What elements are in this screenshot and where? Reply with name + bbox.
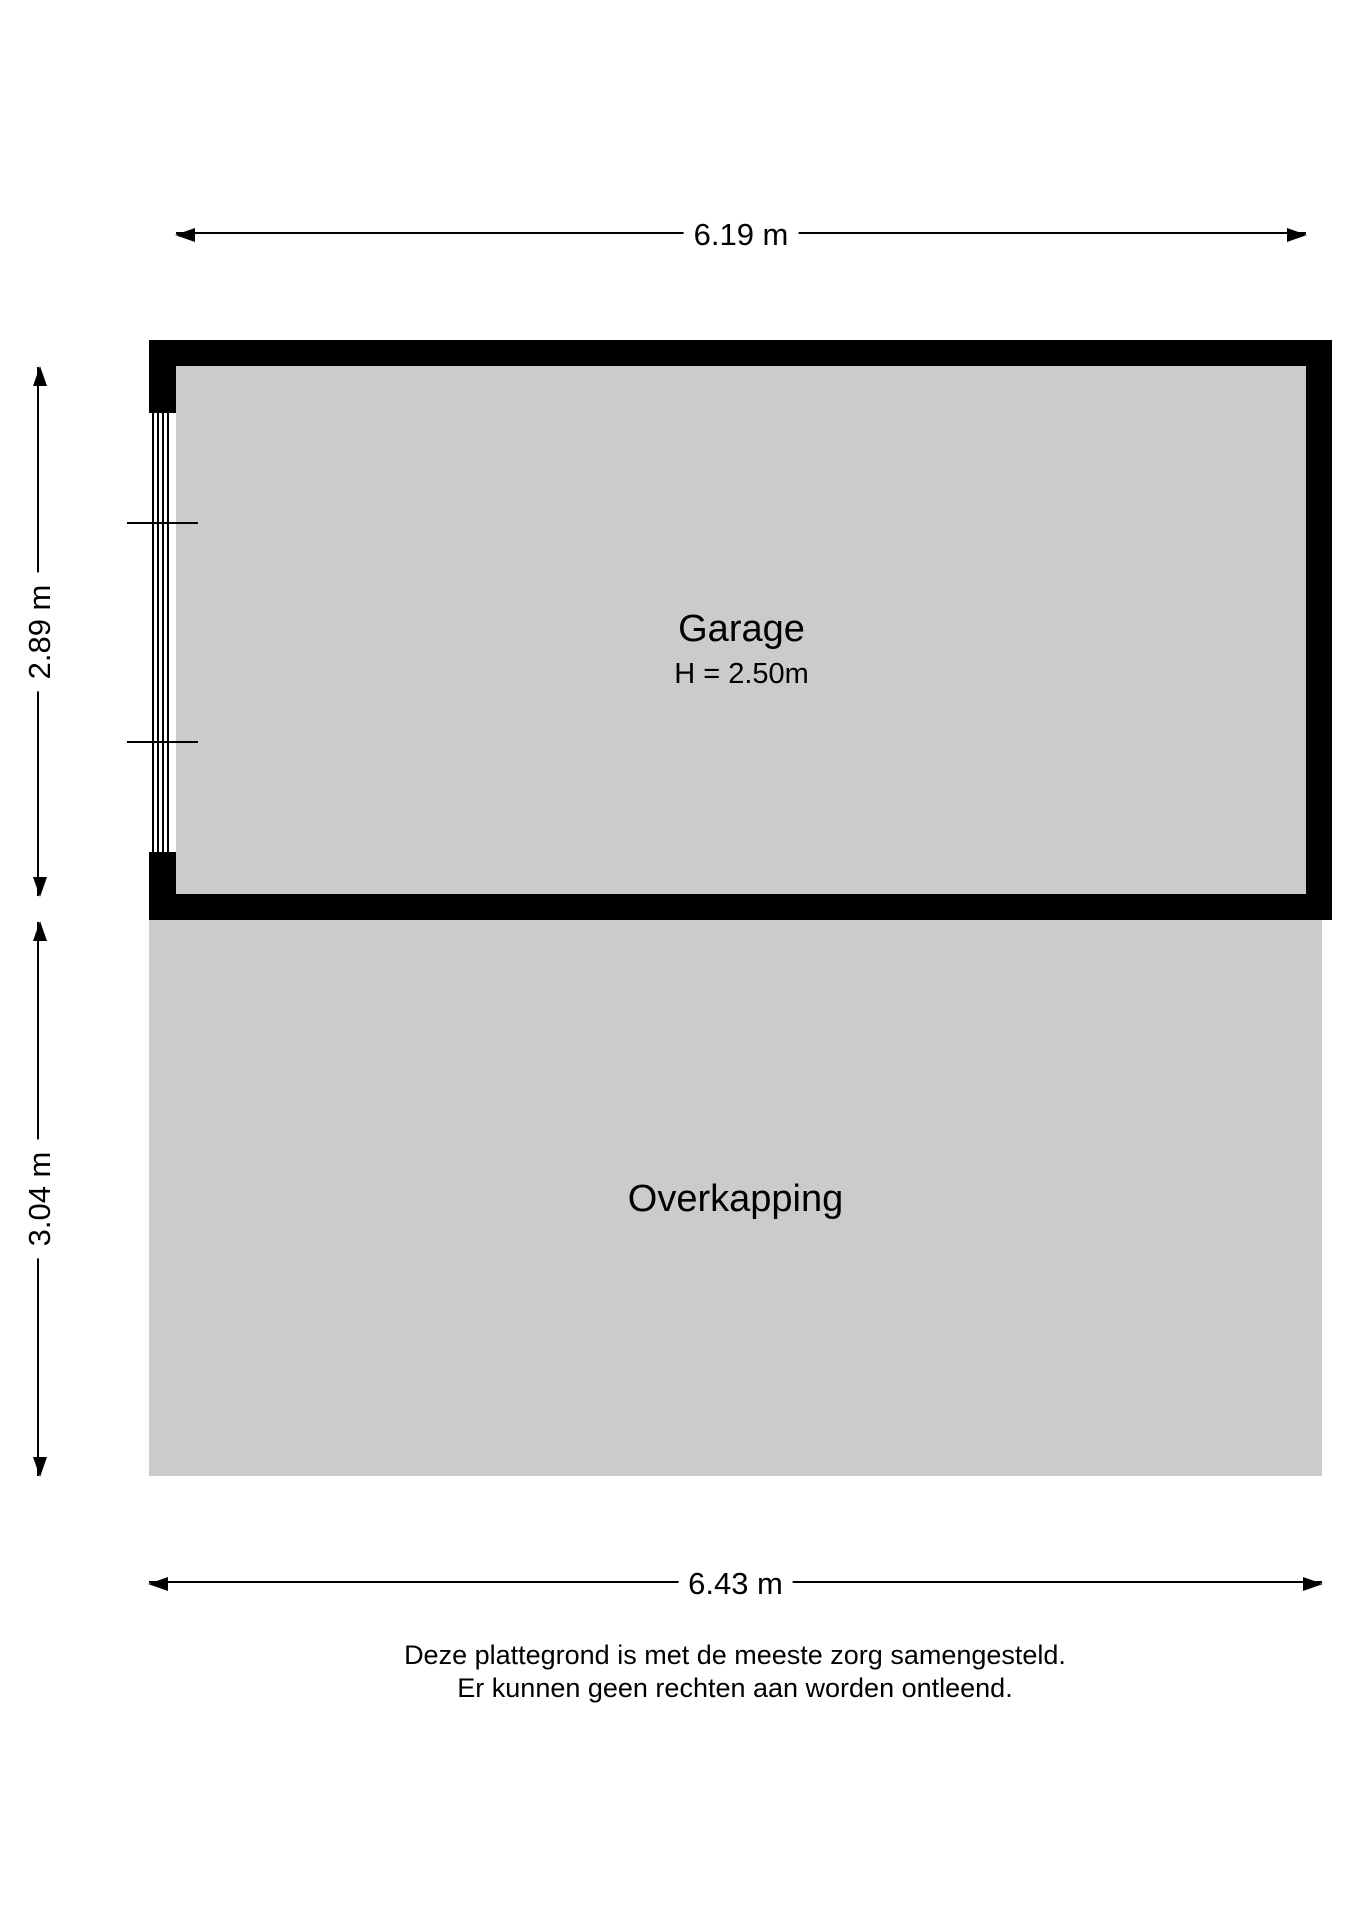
- dimension-top: 6.19 m: [176, 232, 1306, 234]
- arrow-up-icon: [33, 366, 47, 386]
- dimension-bottom-label: 6.43 m: [678, 1565, 793, 1603]
- floorplan: 6.19 m Garage H = 2.50m Overkapping 2.89…: [0, 0, 1358, 1920]
- dimension-left-upper: 2.89 m: [37, 367, 39, 896]
- disclaimer-line-1: Deze plattegrond is met de meeste zorg s…: [156, 1639, 1314, 1672]
- room-label-garage: Garage: [176, 607, 1307, 651]
- door-tick: [127, 741, 198, 743]
- wall-stub-bottom-left: [149, 852, 176, 920]
- disclaimer-line-2: Er kunnen geen rechten aan worden ontlee…: [156, 1672, 1314, 1705]
- arrow-right-icon: [1287, 228, 1307, 242]
- door-line: [162, 413, 164, 852]
- door-line: [152, 413, 154, 852]
- disclaimer: Deze plattegrond is met de meeste zorg s…: [156, 1639, 1314, 1705]
- room-height-label-garage: H = 2.50m: [176, 657, 1307, 691]
- dimension-bottom: 6.43 m: [149, 1581, 1322, 1583]
- dimension-left-lower: 3.04 m: [37, 922, 39, 1476]
- arrow-left-icon: [175, 228, 195, 242]
- room-label-overkapping: Overkapping: [149, 1177, 1322, 1221]
- arrow-down-icon: [33, 1457, 47, 1477]
- door-line: [167, 413, 169, 852]
- wall-stub-top-left: [149, 340, 176, 413]
- arrow-left-icon: [148, 1577, 168, 1591]
- dimension-left-upper-label: 2.89 m: [21, 572, 59, 691]
- arrow-up-icon: [33, 921, 47, 941]
- door-tick: [127, 522, 198, 524]
- arrow-down-icon: [33, 877, 47, 897]
- dimension-left-lower-label: 3.04 m: [21, 1140, 59, 1259]
- dimension-top-label: 6.19 m: [684, 216, 799, 254]
- arrow-right-icon: [1303, 1577, 1323, 1591]
- door-line: [157, 413, 159, 852]
